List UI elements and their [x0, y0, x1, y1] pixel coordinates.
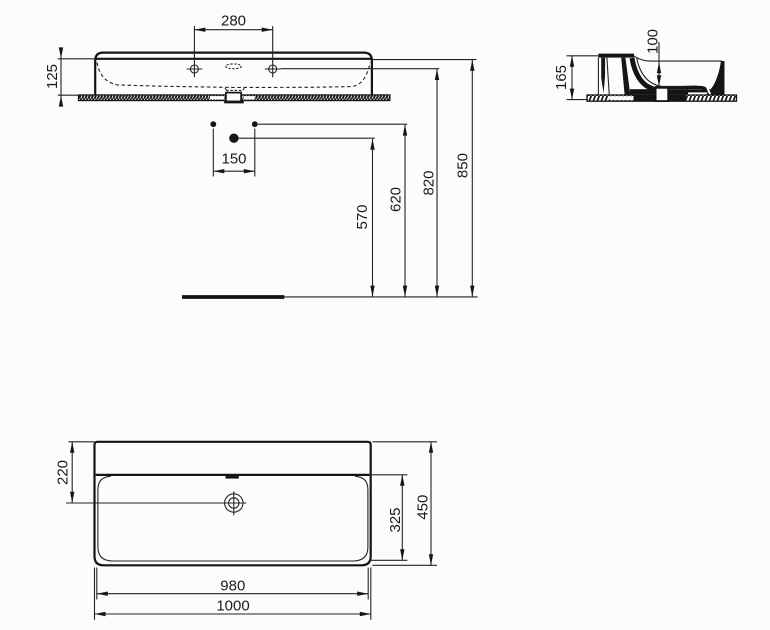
svg-text:850: 850 [455, 153, 472, 178]
svg-text:150: 150 [221, 151, 246, 168]
svg-text:220: 220 [54, 460, 71, 485]
svg-text:165: 165 [553, 65, 570, 90]
svg-text:280: 280 [221, 12, 246, 29]
svg-text:325: 325 [387, 507, 404, 532]
svg-text:620: 620 [387, 187, 404, 212]
svg-text:980: 980 [220, 577, 245, 594]
svg-text:570: 570 [354, 204, 371, 229]
svg-text:450: 450 [415, 495, 432, 520]
svg-text:820: 820 [421, 170, 438, 195]
svg-text:1000: 1000 [216, 598, 249, 615]
svg-text:100: 100 [644, 29, 661, 54]
svg-text:125: 125 [44, 64, 61, 89]
